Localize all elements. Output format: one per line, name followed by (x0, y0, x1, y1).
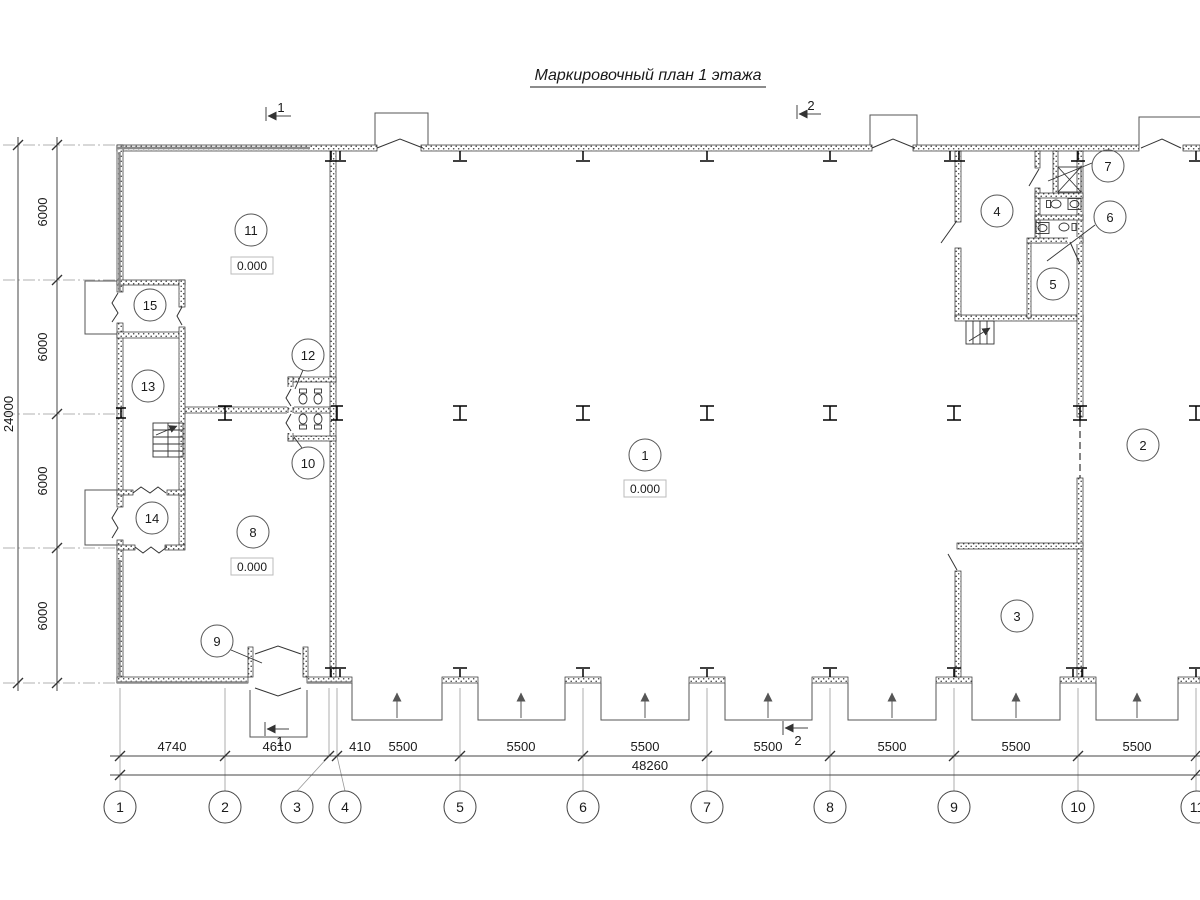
room-tag-4: 4 (981, 195, 1013, 227)
grid-bubble-10: 10 (1070, 799, 1086, 815)
room-11-elevation: 0.000 (237, 259, 267, 273)
section-mark-2-top: 2 (797, 98, 821, 119)
dim-5500-7: 5500 (1123, 739, 1152, 754)
room-tag-8: 8 0.000 (231, 516, 273, 575)
section-2-bottom-label: 2 (794, 733, 801, 748)
grid-bubbles: 1 2 3 4 5 6 7 8 9 10 11 (104, 791, 1200, 823)
room-tag-2: 2 (1127, 429, 1159, 461)
dim-6000-4: 6000 (35, 602, 50, 631)
dim-total-height: 24000 (1, 396, 16, 432)
room-tag-13: 13 (132, 370, 164, 402)
columns-bottom-wall (325, 668, 1200, 677)
room-15-number: 15 (143, 298, 157, 313)
grid-bubble-11: 11 (1190, 799, 1200, 815)
room-tag-1: 1 0.000 (624, 439, 666, 497)
dim-4610: 4610 (263, 739, 292, 754)
room-5-number: 5 (1049, 277, 1056, 292)
room-tag-11: 11 0.000 (231, 214, 273, 274)
section-mark-1-top: 1 (266, 100, 291, 121)
room-1-number: 1 (641, 448, 648, 463)
room-tag-7: 7 (1048, 150, 1124, 182)
room-14-number: 14 (145, 511, 159, 526)
floor-plan-canvas: Маркировочный план 1 этажа (0, 0, 1200, 900)
room-13-number: 13 (141, 379, 155, 394)
dim-5500-6: 5500 (1002, 739, 1031, 754)
grid-bubble-7: 7 (703, 799, 711, 815)
grid-bubble-5: 5 (456, 799, 464, 815)
door-swings (941, 169, 1080, 570)
stairs-room13 (153, 423, 183, 457)
door-chevrons (112, 139, 1181, 696)
porches-and-gates (85, 113, 1200, 737)
room-12-number: 12 (301, 348, 315, 363)
dim-5500-2: 5500 (507, 739, 536, 754)
dim-5500-4: 5500 (754, 739, 783, 754)
room-1-elevation: 0.000 (630, 482, 660, 496)
room-2-number: 2 (1139, 438, 1146, 453)
grid-bubble-9: 9 (950, 799, 958, 815)
room-10-number: 10 (301, 456, 315, 471)
room-tags: 1 0.000 2 3 4 5 6 7 (132, 150, 1159, 663)
room-9-number: 9 (213, 634, 220, 649)
section-2-top-label: 2 (807, 98, 814, 113)
section-1-top-label: 1 (277, 100, 284, 115)
room-tag-10: 10 (292, 437, 324, 479)
dim-6000-3: 6000 (35, 467, 50, 496)
floor-plan-page: Маркировочный план 1 этажа (0, 0, 1200, 900)
grid-bubble-6: 6 (579, 799, 587, 815)
dim-total-width: 48260 (632, 758, 668, 773)
room-tag-14: 14 (136, 502, 168, 534)
room-7-number: 7 (1104, 159, 1111, 174)
page-title: Маркировочный план 1 этажа (534, 67, 761, 84)
room-3-number: 3 (1013, 609, 1020, 624)
dim-4740: 4740 (158, 739, 187, 754)
section-marks: 1 2 1 2 (265, 98, 821, 749)
dim-5500-3: 5500 (631, 739, 660, 754)
dim-5500-1: 5500 (389, 739, 418, 754)
dimension-left: 6000 6000 6000 6000 24000 (1, 137, 117, 691)
wall-gray-faces (117, 148, 352, 683)
columns-top-wall (325, 151, 1200, 161)
stairs-room4 (966, 321, 994, 344)
section-mark-2-bottom: 2 (783, 721, 808, 748)
dim-6000-1: 6000 (35, 198, 50, 227)
grid-bubble-2: 2 (221, 799, 229, 815)
grid-bubble-4: 4 (341, 799, 349, 815)
room-tag-3: 3 (1001, 600, 1033, 632)
dim-6000-2: 6000 (35, 333, 50, 362)
grid-bubble-1: 1 (116, 799, 124, 815)
dim-5500-5: 5500 (878, 739, 907, 754)
room-tag-15: 15 (134, 289, 166, 321)
room-4-number: 4 (993, 204, 1000, 219)
dimension-bottom: 4740 4610 410 5500 5500 5500 5500 5500 5… (110, 688, 1200, 791)
gate-entry-arrows (397, 693, 1137, 718)
dim-410: 410 (349, 739, 371, 754)
room-tag-5: 5 (1037, 268, 1069, 300)
room-8-elevation: 0.000 (237, 560, 267, 574)
room-8-number: 8 (249, 525, 256, 540)
grid-bubble-8: 8 (826, 799, 834, 815)
interior-walls (117, 151, 1083, 677)
room-11-number: 11 (244, 223, 258, 238)
room-tag-6: 6 (1047, 201, 1126, 261)
room-6-number: 6 (1106, 210, 1113, 225)
grid-bubble-3: 3 (293, 799, 301, 815)
